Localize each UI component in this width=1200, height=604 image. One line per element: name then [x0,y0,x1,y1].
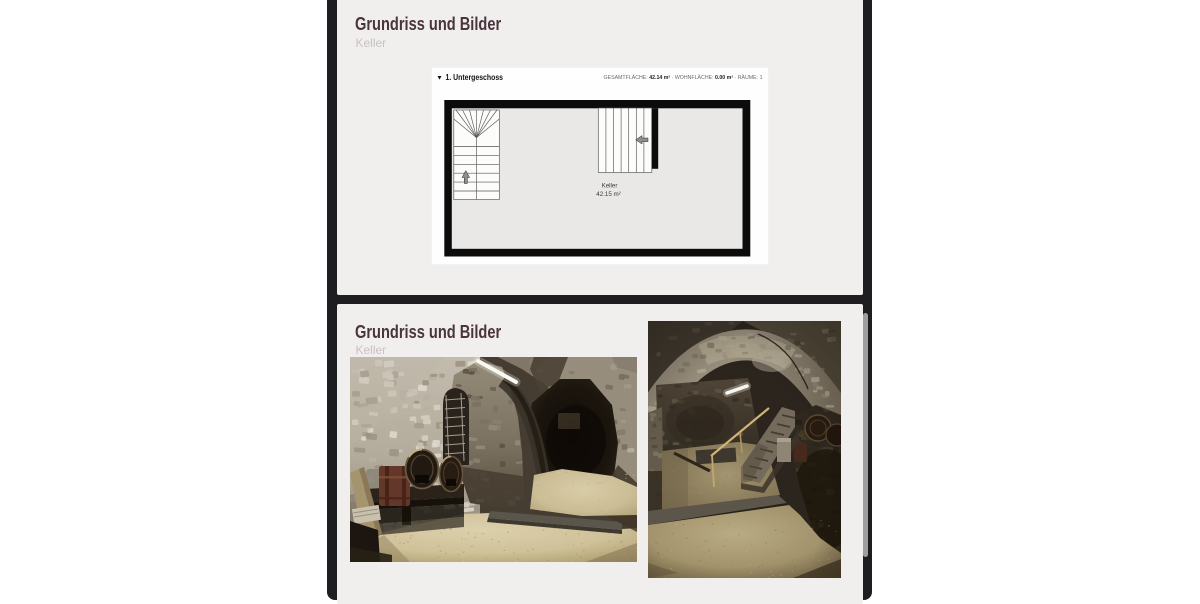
svg-text:GESAMTFLÄCHE: 42.14 m² · WOHNF: GESAMTFLÄCHE: 42.14 m² · WOHNFLÄCHE: 0.0… [604,74,763,81]
svg-text:42.15 m²: 42.15 m² [596,191,620,198]
svg-text:1. Untergeschoss: 1. Untergeschoss [446,72,504,82]
svg-text:Keller: Keller [602,183,618,190]
